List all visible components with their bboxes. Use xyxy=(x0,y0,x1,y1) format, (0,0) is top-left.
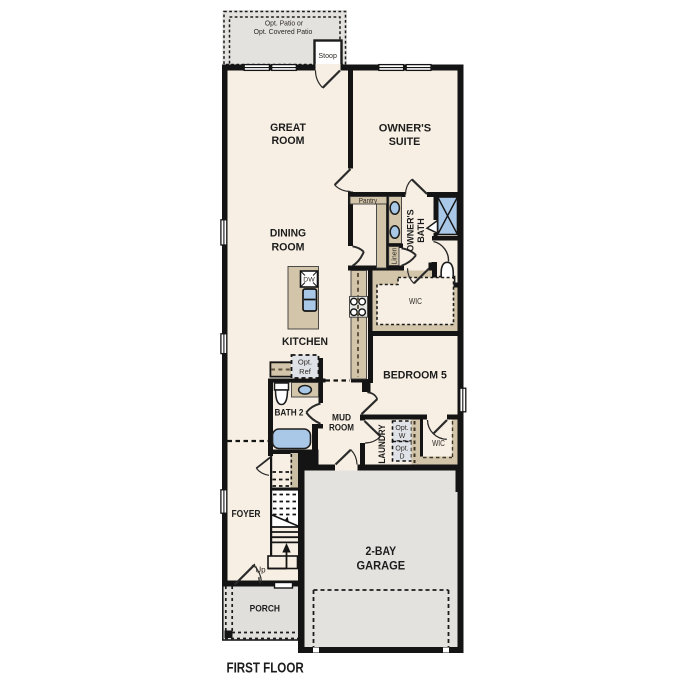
svg-text:BEDROOM 5: BEDROOM 5 xyxy=(383,370,447,382)
svg-text:FOYER: FOYER xyxy=(231,509,261,520)
svg-text:ROOM: ROOM xyxy=(272,135,305,147)
svg-text:FIRST FLOOR: FIRST FLOOR xyxy=(227,661,304,677)
svg-text:Opt.: Opt. xyxy=(395,425,408,432)
svg-text:Linen: Linen xyxy=(391,247,398,264)
svg-text:WIC: WIC xyxy=(409,296,422,306)
svg-text:ROOM: ROOM xyxy=(272,242,305,254)
svg-text:Ref: Ref xyxy=(299,367,312,376)
svg-text:DINING: DINING xyxy=(270,228,306,240)
svg-text:GREAT: GREAT xyxy=(270,122,306,134)
svg-text:OWNER'S: OWNER'S xyxy=(379,123,431,135)
svg-text:W: W xyxy=(399,433,406,440)
svg-text:Opt.: Opt. xyxy=(298,358,312,367)
svg-text:GARAGE: GARAGE xyxy=(357,559,406,573)
svg-text:DW: DW xyxy=(303,277,315,284)
svg-text:PORCH: PORCH xyxy=(250,604,281,615)
svg-text:KITCHEN: KITCHEN xyxy=(282,336,328,348)
svg-text:Pantry: Pantry xyxy=(359,198,378,205)
svg-text:WIC: WIC xyxy=(432,439,445,448)
svg-text:SUITE: SUITE xyxy=(389,136,421,148)
svg-text:BATH: BATH xyxy=(416,218,427,243)
svg-text:D: D xyxy=(399,454,404,461)
svg-text:ROOM: ROOM xyxy=(329,423,354,434)
svg-text:Opt.: Opt. xyxy=(395,446,408,453)
svg-text:2-BAY: 2-BAY xyxy=(366,544,397,558)
svg-text:Opt. Patio or: Opt. Patio or xyxy=(265,19,304,28)
svg-text:LAUNDRY: LAUNDRY xyxy=(377,424,388,464)
svg-text:Opt. Covered Patio: Opt. Covered Patio xyxy=(254,27,313,36)
svg-text:BATH 2: BATH 2 xyxy=(275,408,304,419)
svg-text:Stoop: Stoop xyxy=(318,53,337,60)
